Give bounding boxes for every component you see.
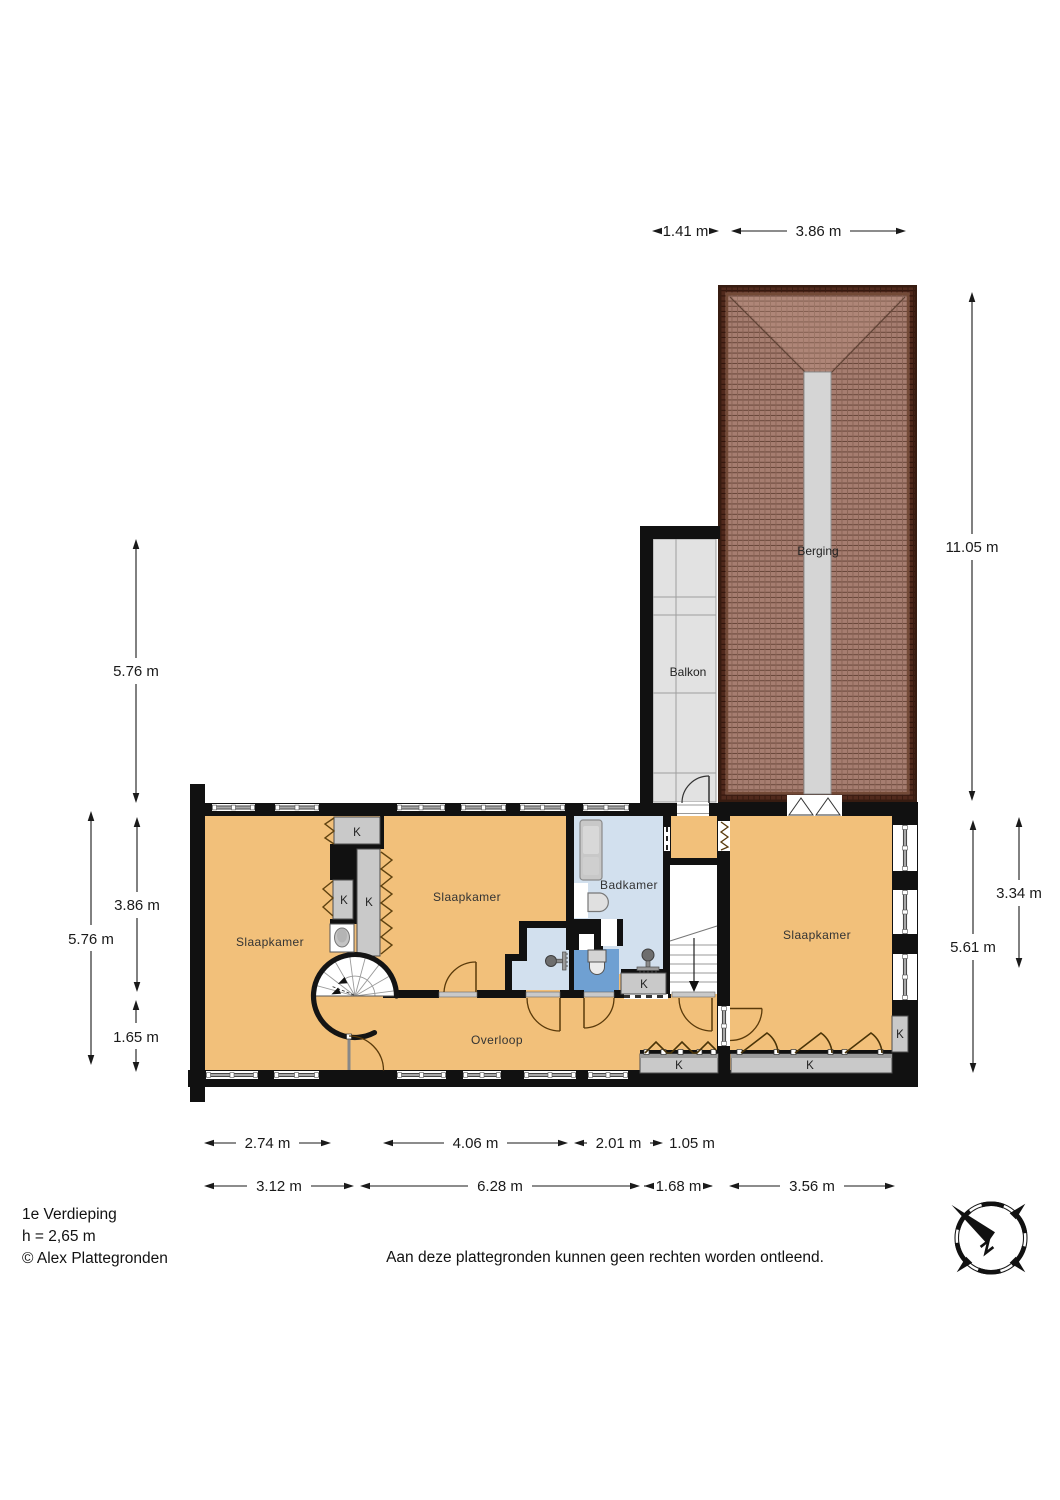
svg-text:K: K: [365, 897, 373, 909]
svg-text:Badkamer: Badkamer: [600, 878, 658, 892]
svg-text:Slaapkamer: Slaapkamer: [783, 928, 851, 942]
svg-text:1.05 m: 1.05 m: [669, 1135, 715, 1152]
svg-text:4.06 m: 4.06 m: [453, 1135, 499, 1152]
svg-text:K: K: [896, 1029, 904, 1041]
svg-text:Overloop: Overloop: [471, 1033, 523, 1047]
svg-text:6.28 m: 6.28 m: [477, 1178, 523, 1195]
svg-text:11.05 m: 11.05 m: [945, 539, 998, 556]
svg-text:3.12 m: 3.12 m: [256, 1178, 302, 1195]
svg-text:K: K: [340, 895, 348, 907]
svg-text:Slaapkamer: Slaapkamer: [236, 935, 304, 949]
svg-text:1.65 m: 1.65 m: [113, 1029, 159, 1046]
svg-text:1.68 m: 1.68 m: [656, 1178, 702, 1195]
svg-text:3.86 m: 3.86 m: [114, 897, 160, 914]
svg-text:5.76 m: 5.76 m: [68, 931, 114, 948]
svg-text:© Alex Plattegronden: © Alex Plattegronden: [22, 1250, 168, 1267]
svg-text:3.86 m: 3.86 m: [796, 223, 842, 240]
svg-text:Berging: Berging: [797, 544, 838, 558]
svg-text:Aan deze plattegronden kunnen: Aan deze plattegronden kunnen geen recht…: [386, 1249, 824, 1266]
svg-text:K: K: [675, 1060, 683, 1072]
svg-text:K: K: [353, 827, 361, 839]
svg-text:3.34 m: 3.34 m: [996, 885, 1042, 902]
svg-text:1e Verdieping: 1e Verdieping: [22, 1206, 117, 1223]
svg-text:h = 2,65 m: h = 2,65 m: [22, 1228, 96, 1245]
svg-text:2.01 m: 2.01 m: [596, 1135, 642, 1152]
svg-text:K: K: [640, 979, 648, 991]
svg-text:5.76 m: 5.76 m: [113, 663, 159, 680]
svg-text:3.56 m: 3.56 m: [789, 1178, 835, 1195]
svg-text:K: K: [806, 1060, 814, 1072]
svg-text:1.41 m: 1.41 m: [663, 223, 709, 240]
svg-text:Slaapkamer: Slaapkamer: [433, 890, 501, 904]
svg-text:Balkon: Balkon: [670, 665, 707, 679]
svg-text:5.61 m: 5.61 m: [950, 939, 996, 956]
svg-text:2.74 m: 2.74 m: [245, 1135, 291, 1152]
